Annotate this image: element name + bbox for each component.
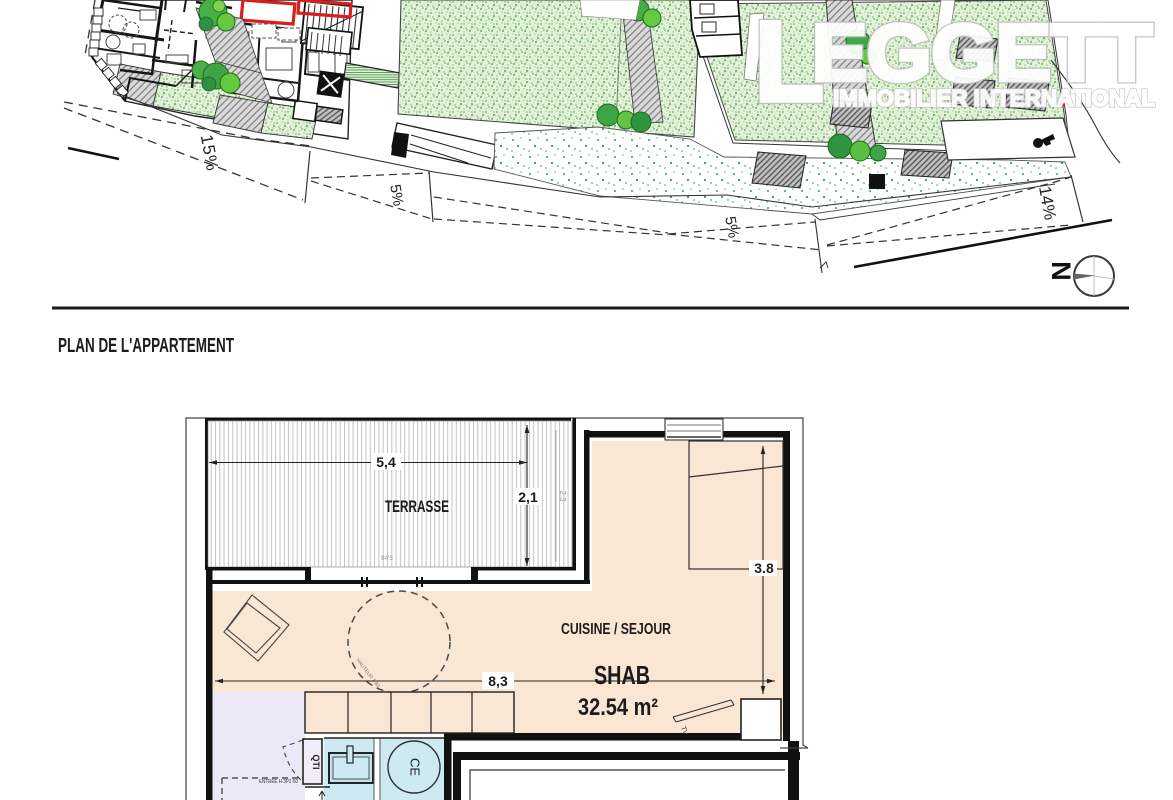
svg-text:3.8: 3.8 bbox=[754, 560, 774, 576]
svg-text:IMMOBILIER INTERNATIONAL: IMMOBILIER INTERNATIONAL bbox=[833, 85, 1155, 111]
svg-text:8,3: 8,3 bbox=[488, 673, 508, 689]
svg-text:CE: CE bbox=[408, 758, 423, 776]
svg-text:84'5: 84'5 bbox=[381, 555, 393, 562]
svg-text:2,1: 2,1 bbox=[518, 489, 538, 505]
svg-text:5,4: 5,4 bbox=[376, 454, 396, 470]
svg-text:QTI: QTI bbox=[311, 755, 321, 770]
svg-text:PLAN DE L'APPARTEMENT: PLAN DE L'APPARTEMENT bbox=[58, 335, 234, 357]
svg-text:N: N bbox=[1046, 261, 1076, 281]
svg-text:EGGETT: EGGETT bbox=[812, 8, 1152, 97]
svg-text:SHAB: SHAB bbox=[594, 660, 650, 690]
svg-text:CUISINE / SEJOUR: CUISINE / SEJOUR bbox=[561, 621, 671, 638]
svg-text:ENTREE H·3P2·50: ENTREE H·3P2·50 bbox=[259, 779, 298, 785]
svg-text:TERRASSE: TERRASSE bbox=[385, 497, 449, 516]
svg-text:2,3: 2,3 bbox=[558, 490, 567, 502]
svg-text:32.54 m²: 32.54 m² bbox=[578, 694, 658, 721]
